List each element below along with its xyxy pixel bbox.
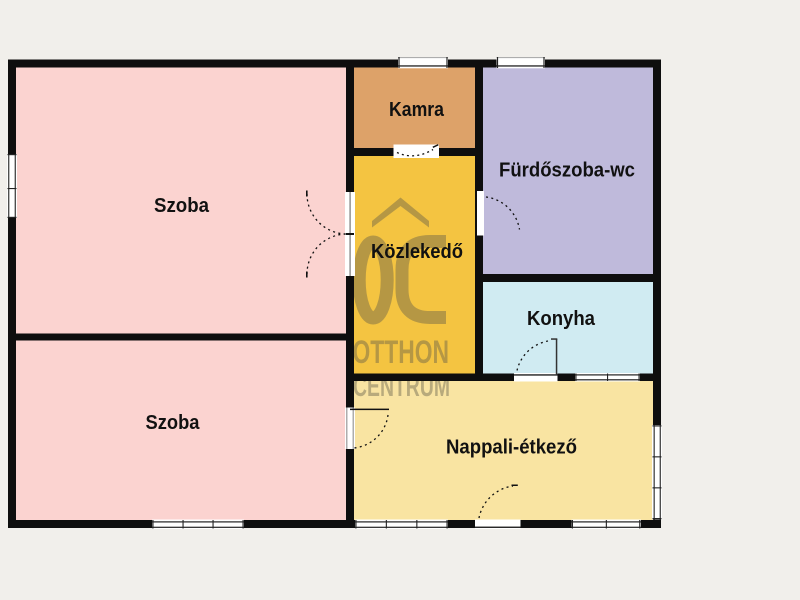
svg-text:OTTHON: OTTHON <box>353 334 450 370</box>
svg-text:Közlekedő: Közlekedő <box>371 241 463 263</box>
svg-text:Fürdőszoba-wc: Fürdőszoba-wc <box>499 160 635 182</box>
svg-text:Konyha: Konyha <box>527 308 596 330</box>
svg-text:Szoba: Szoba <box>146 412 201 434</box>
svg-text:Nappali-étkező: Nappali-étkező <box>446 437 577 459</box>
svg-text:Kamra: Kamra <box>389 99 445 121</box>
svg-text:Szoba: Szoba <box>154 195 210 217</box>
